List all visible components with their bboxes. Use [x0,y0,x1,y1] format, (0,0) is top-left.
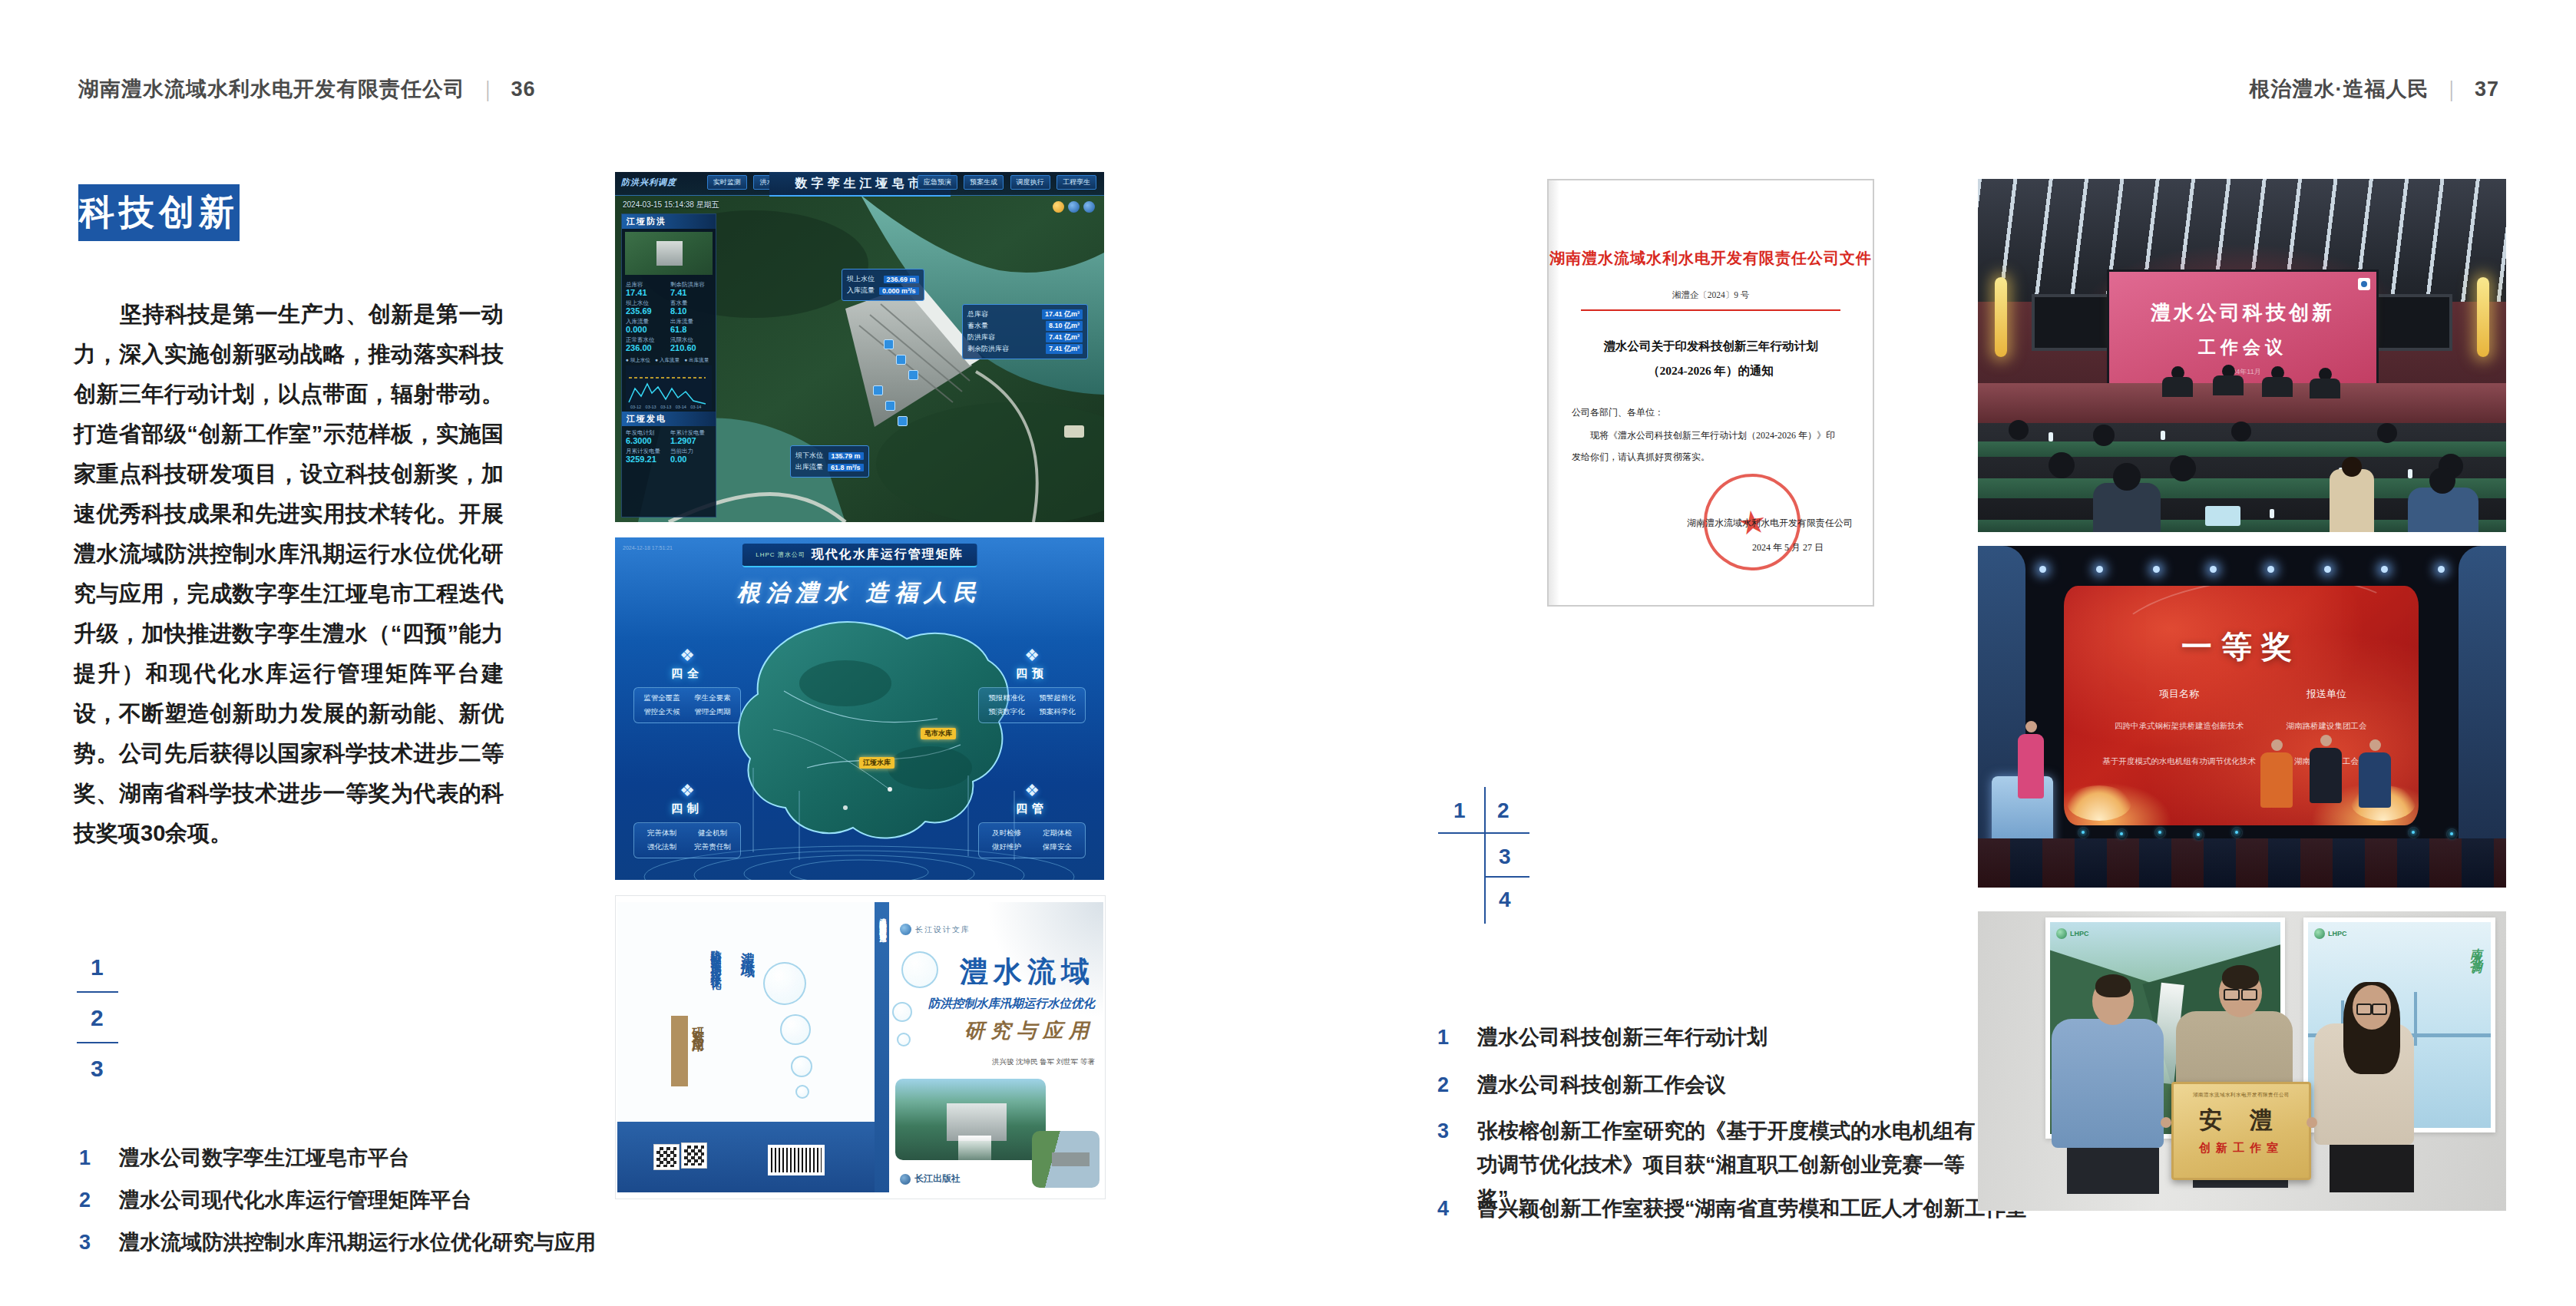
group-name: 四制 [633,802,741,816]
caption-text: 澧水公司数字孪生江垭皂市平台 [119,1146,409,1169]
caption-number: 4 [1437,1197,1477,1221]
plaque-subtitle: 创新工作室 [2174,1141,2309,1156]
series-name: 长江设计文库 [915,924,971,935]
audience-member [2049,452,2075,478]
callout-label: 坝下水位 [795,451,823,461]
figure-caption: 3澧水流域防洪控制水库汛期运行水位优化研究与应用 [79,1228,596,1256]
callout-row: 防洪库容7.41 亿m³ [967,332,1083,342]
presidium-member-body [2162,377,2193,397]
group-panel: 完善体制 健全机制 强化法制 完善责任制 [633,822,741,858]
moving-head-light [2408,827,2419,838]
recipient-body [2260,752,2293,808]
dam-gorge-photo [895,1079,1046,1160]
glasses [2224,989,2258,998]
caption-number: 3 [79,1231,119,1255]
person-skirt [2330,1145,2414,1192]
group-item: 预警超前化 [1033,693,1082,703]
poster-calligraphy: 南水北调 [2469,939,2483,957]
stage-light [2039,566,2046,573]
page-number-right: 37 [2475,78,2499,101]
callout-capacity: 总库容17.41 亿m³ 蓄水量8.10 亿m³ 防洪库容7.41 亿m³ 剩余… [962,304,1088,359]
presidium-member-body [2310,379,2340,398]
figure-index-3: 3 [91,1056,104,1082]
audience-member-front [2408,488,2478,532]
figure-index-1: 1 [91,954,104,980]
caption-number: 3 [1437,1114,1477,1148]
document-header: 湖南澧水流域水利水电开发有限责任公司文件 [1549,248,1873,269]
body-paragraph: 坚持科技是第一生产力、创新是第一动力，深入实施创新驱动战略，推动落实科技创新三年… [74,294,504,853]
book-front-cover: 长江设计文库 澧水流域 防洪控制水库汛期运行水位优化 研究与应用 洪兴骏 沈坤民… [889,902,1103,1192]
group-name: 四全 [633,666,741,681]
stat: 蓄水量8.10 [670,299,712,316]
cube-icon: ❖ [633,782,741,800]
callout-label: 入库流量 [847,286,875,296]
red-rule [1581,309,1840,311]
user-icon [1053,201,1064,213]
moving-head-light [2154,827,2166,838]
gate-marker [873,385,883,395]
gate-marker [896,355,906,365]
callout-value: 236.69 m [884,276,919,283]
dam-shape [1052,1152,1089,1166]
stat: 当前出力0.00 [670,448,712,464]
index-divider-line [1484,876,1529,878]
back-title-main: 澧水流域 [739,941,757,956]
award-row1-unit: 湖南路桥建设集团工会 [2250,721,2403,732]
group-item: 定期体检 [1033,828,1082,838]
truss-lights [2039,566,2445,573]
group-item: 预案科学化 [1033,707,1082,717]
reservoir-marker-jiangya: 江垭水库 [859,757,894,769]
stat: 入库流量0.000 [626,318,667,334]
figure-index-2: 2 [91,1005,104,1031]
callout-value: 135.79 m [828,452,864,460]
motto: 根治澧水·造福人民 [2250,78,2429,101]
body-line1: 现将《澧水公司科技创新三年行动计划（2024-2026 年）》印 [1590,429,1835,442]
layers-icon [1083,201,1095,213]
publisher-logo-icon [900,924,911,935]
stat: 正常蓄水位236.00 [626,336,667,352]
moving-head-light [2078,827,2089,838]
stat: 年发电计划6.3000 [626,429,667,445]
caption-text: 澧水公司科技创新三年行动计划 [1477,1026,1767,1049]
screen-title-line1: 澧水公司科技创新 [2109,299,2376,326]
topbar-corner-label: 防洪兴利调度 [621,177,676,188]
figure-caption: 2澧水公司现代化水库运行管理矩阵平台 [79,1186,471,1214]
presidium-member-body [2262,377,2293,397]
matrix-group-siquan: ❖ 四全 监管全覆盖 孪生全要素 管控全天候 管理全周期 [633,646,741,723]
caption-text: 澧水公司现代化水库运行管理矩阵平台 [119,1189,471,1212]
group-item: 管理全周期 [688,707,737,717]
gate-marker [908,370,918,380]
bubble-decoration [791,1056,812,1077]
group-panel: 及时检修 定期体检 做好维护 保障安全 [978,822,1086,858]
salutation: 公司各部门、各单位： [1572,406,1664,419]
wall-lamp [2477,277,2489,357]
dam-shape [656,241,683,265]
topbar-tabs-right: 应急预演 预案生成 调度执行 工程孪生 [916,172,1098,190]
person-head [2219,968,2262,1017]
callout-value: 7.41 亿m³ [1046,332,1083,342]
book-spine: 澧水流域防洪控制水库汛期运行水位优化研究与应用 [875,902,889,1192]
stage-light [2267,566,2274,573]
award-recipient-orange [2260,739,2293,808]
book-back-cover: 澧水流域 防洪控制水库汛期运行水位优化 研究与应用 [617,902,875,1192]
group-name: 四预 [978,666,1086,681]
stat-value: 3259.21 [626,455,667,464]
cube-icon: ❖ [633,646,741,665]
datetime-label: 2024-03-15 15:14:38 星期五 [623,200,719,210]
audience-member [2231,422,2251,441]
host-head [2025,721,2037,732]
group-item: 强化法制 [637,842,686,852]
page-number-left: 36 [511,78,535,101]
moving-head-light [2116,828,2128,840]
power-station-photo [1032,1131,1100,1188]
figure-caption: 4曾兴颖创新工作室获授“湖南省直劳模和工匠人才创新工作室” [1437,1195,2037,1222]
moving-head-light [2446,828,2458,840]
callout-label: 坝上水位 [847,274,875,284]
figure-digital-twin-platform: 防洪兴利调度 实时监测 洪水预报 防洪预警 数字孪生江垭皂市 应急预演 预案生成… [615,172,1104,522]
stage-side-panel-right [2459,546,2506,888]
caption-number: 1 [1437,1026,1477,1050]
wall-display-left [2032,294,2111,351]
stage-light [2381,566,2388,573]
moving-head-light [2231,827,2243,838]
water-bottle [2270,509,2274,518]
audience-member-cream-coat [2330,469,2374,532]
person-trousers [2067,1148,2159,1194]
callout-row: 剩余防洪库容7.41 亿m³ [967,344,1083,354]
callout-value: 7.41 亿m³ [1046,344,1083,354]
group-name: 四管 [978,802,1086,816]
stat: 月累计发电量3259.21 [626,448,667,464]
callout-value: 17.41 亿m³ [1042,309,1083,319]
group-panel: 监管全覆盖 孪生全要素 管控全天候 管理全周期 [633,687,741,723]
figure-plaque-photo: LHPC LHPC 南水北调 [1978,911,2506,1211]
callout-row: 出库流量61.8 m³/s [795,462,864,472]
company-name: 湖南澧水流域水利水电开发有限责任公司 [78,78,465,101]
person-beige-top [2314,985,2429,1192]
stat-value: 235.69 [626,307,667,316]
signature-date: 2024 年 5 月 27 日 [1752,541,1824,554]
callout-value: 0.000 m³/s [879,287,919,295]
panel-title-flood: 江垭防洪 [622,214,716,229]
slide-logo [2358,278,2370,290]
bubble-decoration [763,962,806,1005]
hand [2161,1117,2171,1128]
figure-meeting-photo: 澧水公司科技创新 工作会议 2024年11月 [1978,179,2506,532]
power-stats-grid: 年发电计划6.3000 年累计发电量1.2907 月累计发电量3259.21 当… [622,426,716,467]
group-item: 及时检修 [982,828,1031,838]
figure-caption: 2澧水公司科技创新工作会议 [1437,1071,1726,1099]
callout-row: 入库流量0.000 m³/s [847,286,919,296]
group-item: 监管全覆盖 [637,693,686,703]
index-divider-line [77,1042,118,1043]
audience-member [2009,420,2029,440]
figure-index-1: 1 [1453,798,1466,823]
moving-head-light [2193,829,2204,841]
column-header-project: 项目名称 [2110,687,2248,701]
stat: 剩余防洪库容7.41 [670,281,712,297]
callout-label: 蓄水量 [967,321,988,331]
callout-upstream: 坝上水位236.69 m 入库流量0.000 m³/s [842,269,924,301]
back-accent-chip [671,1016,688,1086]
callout-label: 出库流量 [795,462,823,472]
audience-member [2377,423,2397,443]
caption-number: 1 [79,1146,119,1170]
callout-row: 坝上水位236.69 m [847,274,919,284]
audience-area [1978,423,2506,532]
stat-value: 1.2907 [670,437,712,445]
signature-company: 湖南澧水流域水利水电开发有限责任公司 [1687,517,1853,530]
barcode [768,1145,825,1175]
stage-light [2153,566,2160,573]
spine-title: 澧水流域防洪控制水库汛期运行水位优化研究与应用 [878,913,888,1189]
settings-icon [1068,201,1080,213]
caption-number: 2 [79,1189,119,1212]
callout-downstream: 坝下水位135.79 m 出库流量61.8 m³/s [790,445,869,478]
group-item: 保障安全 [1033,842,1082,852]
cube-icon: ❖ [978,646,1086,665]
audience-member [2113,463,2141,491]
flood-control-panel: 江垭防洪 总库容17.41 剩余防洪库容7.41 坝上水位235.69 蓄水量8… [621,213,716,517]
left-page-header: 湖南澧水流域水利水电开发有限责任公司｜36 [78,75,536,103]
figure-index-2: 2 [1497,798,1510,823]
gate-marker [898,416,908,426]
gate-marker [884,339,894,349]
water-bottle [2049,432,2053,441]
spillway-water [958,1136,991,1160]
publisher-name: 长江出版社 [914,1172,961,1185]
lhpc-logo-icon [2056,928,2067,939]
screen-date: 2024年11月 [2109,367,2376,377]
group-item: 健全机制 [688,828,737,838]
audience-member [2342,457,2362,477]
brochure-spread: 湖南澧水流域水利水电开发有限责任公司｜36 根治澧水·造福人民｜37 科技创新 … [0,0,2576,1306]
water-bottle [2161,431,2165,440]
panel-title-power: 江垭发电 [622,412,716,426]
qr-code [682,1143,706,1168]
stage-light [2324,566,2331,573]
plaque-company-line: 湖南澧水流域水利水电开发有限责任公司 [2174,1092,2309,1099]
lhpc-logo-text: LHPC [2328,930,2347,937]
callout-value: 61.8 m³/s [828,464,864,471]
group-item: 预演数字化 [982,707,1031,717]
award-row1-project: 四跨中承式钢桁架拱桥建造创新技术 [2079,721,2279,732]
bubble-decoration [795,1085,809,1099]
reservoir-marker-zaoshi: 皂市水库 [921,728,956,739]
qr-code [654,1145,679,1169]
figure-official-document: 湖南澧水流域水利水电开发有限责任公司文件 湘澧企〔2024〕9 号 澧水公司关于… [1547,179,1874,607]
host-figure [2018,721,2044,798]
callout-row: 坝下水位135.79 m [795,451,864,461]
stage-dome-decoration [2067,785,2131,821]
chart-legend: ● 坝上水位 ● 入库流量 ● 出库流量 [622,355,716,364]
document-number: 湘澧企〔2024〕9 号 [1549,289,1873,301]
front-title-tail: 研究与应用 [920,1017,1095,1044]
bubble-decoration [897,1033,911,1046]
presenter-head [2320,735,2332,746]
stat-value: 0.000 [626,326,667,334]
column-header-unit: 报送单位 [2265,687,2388,701]
screen-title-line2: 工作会议 [2109,336,2376,359]
stat-value: 210.60 [670,344,712,352]
poster-logo: LHPC [2314,928,2347,939]
recipient-head [2369,739,2381,751]
audience-member [2170,455,2196,481]
award-recipient-navy [2359,739,2391,808]
hand [2306,1117,2317,1128]
presentation-screen: 澧水公司科技创新 工作会议 2024年11月 [2107,269,2379,388]
stat-value: 6.3000 [626,437,667,445]
figure-caption: 1澧水公司科技创新三年行动计划 [1437,1023,1767,1051]
stat-value: 17.41 [626,289,667,297]
index-divider-line [1438,832,1529,834]
stat: 坝上水位235.69 [626,299,667,316]
tab-dispatch-execution: 调度执行 [1010,175,1050,190]
person-hair [2095,974,2130,997]
bubble-decoration [892,1002,912,1022]
tab-plan-generation: 预案生成 [964,175,1004,190]
caption-text: 澧水流域防洪控制水库汛期运行水位优化研究与应用 [119,1231,596,1254]
series-logo: 长江设计文库 [900,924,971,935]
bubble-decoration [780,1014,811,1045]
dam-thumbnail [625,232,713,275]
document-title-line1: 澧水公司关于印发科技创新三年行动计划 [1549,339,1873,355]
matrix-group-siyu: ❖ 四预 预报精准化 预警超前化 预演数字化 预案科学化 [978,646,1086,723]
group-item: 完善责任制 [688,842,737,852]
stat-value: 236.00 [626,344,667,352]
audience-member [2429,468,2455,494]
innovation-workshop-plaque: 湖南澧水流域水利水电开发有限责任公司 安 澧 创新工作室 [2171,1082,2311,1180]
callout-label: 剩余防洪库容 [967,344,1009,354]
group-item: 管控全天候 [637,707,686,717]
front-title-sub: 防洪控制水库汛期运行水位优化 [912,996,1095,1012]
front-title-main: 澧水流域 [920,953,1095,991]
matrix-group-siguan: ❖ 四管 及时检修 定期体检 做好维护 保障安全 [978,782,1086,858]
group-panel: 预报精准化 预警超前化 预演数字化 预案科学化 [978,687,1086,723]
figure-caption: 1澧水公司数字孪生江垭皂市平台 [79,1144,409,1172]
caption-number: 2 [1437,1073,1477,1097]
stat-value: 61.8 [670,326,712,334]
figure-index-3: 3 [1499,845,1511,869]
plaque-main-calligraphy: 安 澧 [2174,1105,2309,1136]
tab-emergency-drill: 应急预演 [918,175,957,190]
wall-display-right [2373,294,2452,351]
flood-stats-grid: 总库容17.41 剩余防洪库容7.41 坝上水位235.69 蓄水量8.10 入… [622,278,716,355]
presidium-member-body [2213,375,2244,395]
wall-lamp [1995,277,2007,357]
index-vertical-line [1484,787,1486,924]
figure-book-cover: 澧水流域 防洪控制水库汛期运行水位优化 研究与应用 澧水流域防洪控制水库汛期运行… [615,895,1106,1199]
person-hair [2222,965,2258,989]
stat-value: 0.00 [670,455,712,464]
water-level-chart: 03-12 03-13 03-13 03-14 03-14 [626,365,712,410]
water-bottle [2408,469,2412,478]
callout-value: 8.10 亿m³ [1046,321,1083,331]
stat-value: 7.41 [670,289,712,297]
publisher-block: 长江出版社 [900,1172,961,1185]
recipient-head [2271,739,2283,751]
tab-realtime-monitoring: 实时监测 [707,175,747,190]
stat: 总库容17.41 [626,281,667,297]
body-line2: 发给你们，请认真抓好贯彻落实。 [1572,451,1710,464]
host-body [2018,734,2044,798]
stage-floor [1978,838,2506,888]
stage-light [2438,566,2445,573]
recipient-body [2359,752,2391,808]
stat: 年累计发电量1.2907 [670,429,712,445]
figure-matrix-platform: 2024-12-18 17:51:21 LHPC 澧水公司 现代化水库运行管理矩… [615,537,1104,880]
person-shirt [2052,1019,2164,1148]
group-item: 孪生全要素 [688,693,737,703]
back-title-tail: 研究与应用 [689,1017,706,1033]
award-row2-project: 基于开度模式的水电机组有功调节优化技术 [2079,756,2279,767]
gate-marker [885,401,895,411]
press-logo-icon [900,1174,911,1185]
person-head [2353,985,2391,1030]
poster-logo: LHPC [2056,928,2089,939]
callout-row: 总库容17.41 亿m³ [967,309,1083,319]
tab-project-twin: 工程孪生 [1057,175,1096,190]
audience-member [2093,425,2115,446]
section-badge: 科技创新 [78,184,240,241]
group-item: 预报精准化 [982,693,1031,703]
authors-line: 洪兴骏 沈坤民 鲁军 刘世军 等著 [912,1057,1095,1067]
lhpc-logo-icon [2314,928,2325,939]
callout-row: 蓄水量8.10 亿m³ [967,321,1083,331]
person-head [2092,977,2134,1025]
index-divider-line [77,991,118,993]
caption-text: 澧水公司科技创新工作会议 [1477,1073,1726,1096]
callout-label: 防洪库容 [967,332,995,342]
person-blue-polo [2052,977,2174,1194]
header-divider: ｜ [478,78,498,101]
matrix-group-sizhi: ❖ 四制 完善体制 健全机制 强化法制 完善责任制 [633,782,741,858]
stat-value: 8.10 [670,307,712,316]
stage-light [2096,566,2103,573]
award-presenter-suit [2310,735,2342,803]
stage-light [2210,566,2217,573]
header-divider: ｜ [2442,78,2462,101]
group-item: 做好维护 [982,842,1031,852]
tissue-box [2205,506,2240,526]
chart-axis-labels: 03-12 03-13 03-13 03-14 03-14 [630,405,701,409]
figure-award-ceremony: 一等奖 项目名称 报送单位 四跨中承式钢桁架拱桥建造创新技术 湖南路桥建设集团工… [1978,546,2506,888]
stat: 汛限水位210.60 [670,336,712,352]
stat: 出库流量61.8 [670,318,712,334]
figure-index-4: 4 [1499,888,1511,912]
document-title-line2: （2024-2026 年）的通知 [1549,363,1873,379]
caption-text: 曾兴颖创新工作室获授“湖南省直劳模和工匠人才创新工作室” [1477,1197,2037,1220]
glasses [2356,1003,2387,1013]
right-page-header: 根治澧水·造福人民｜37 [2250,75,2500,103]
presenter-body [2310,748,2342,803]
group-item: 完善体制 [637,828,686,838]
cube-icon: ❖ [978,782,1086,800]
slide-logo-dot [2361,281,2367,287]
lhpc-logo-text: LHPC [2070,930,2089,937]
callout-label: 总库容 [967,309,988,319]
